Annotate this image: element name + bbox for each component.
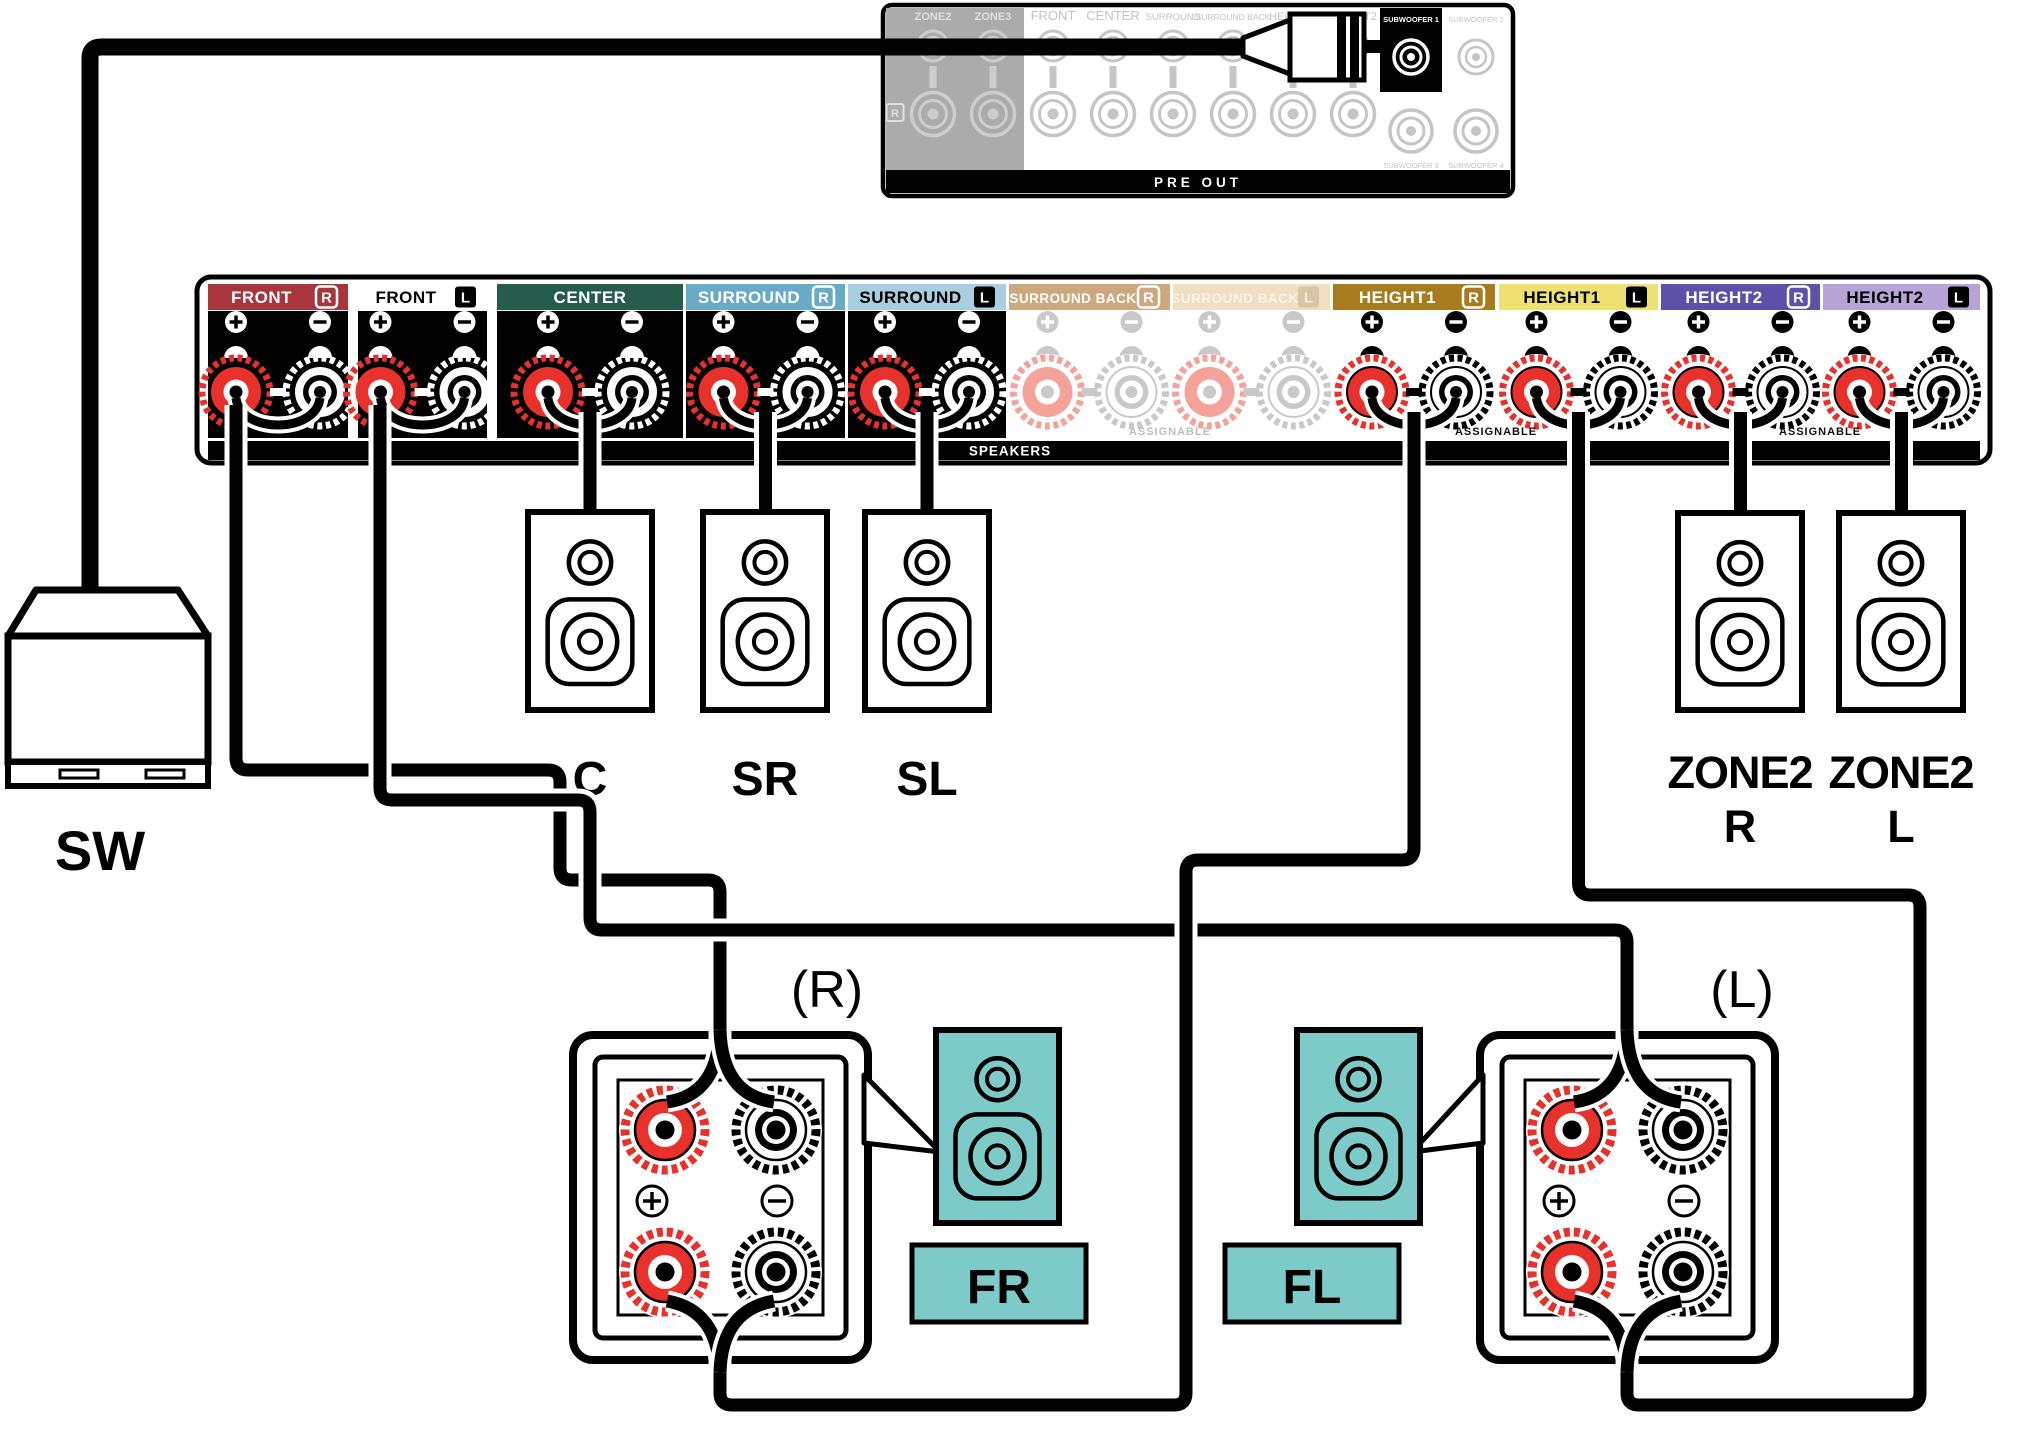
post-jumper (1894, 388, 1910, 396)
plus-icon (637, 1186, 667, 1216)
zone2-left-speaker (1839, 513, 1963, 710)
post-jumper (758, 388, 774, 396)
section-label: SURROUND (859, 288, 961, 307)
jack-link (1230, 66, 1237, 88)
preout-jack-label: FRONT (1031, 8, 1076, 23)
section-label: HEIGHT2 (1846, 288, 1923, 307)
post-jumper (1733, 388, 1749, 396)
speaker-wiring-diagram: ZONE2ZONE3FRONTCENTERSURROUNDSURROUND BA… (0, 0, 2027, 1435)
minus-icon (1121, 311, 1143, 333)
jack-link (1110, 66, 1117, 88)
surround-left-speaker (865, 512, 989, 710)
speakers-bar (208, 441, 1980, 460)
jack-link (990, 66, 997, 88)
post-jumper (415, 388, 431, 396)
jack-link (930, 66, 937, 88)
post-jumper (1406, 388, 1422, 396)
plus-icon (1199, 311, 1221, 333)
subwoofer-label: SW (55, 819, 145, 882)
surround-right-speaker (703, 512, 827, 710)
post-jumper (1244, 388, 1260, 396)
subwoofer1-label: SUBWOOFER 1 (1383, 15, 1439, 24)
section-label: HEIGHT1 (1359, 288, 1436, 307)
minus-icon (797, 311, 819, 333)
zone2-right-label-line1: ZONE2 (1667, 747, 1812, 798)
section-label: FRONT (375, 288, 436, 307)
pre-out-bar-label: PRE OUT (1154, 175, 1242, 190)
plus-icon (1849, 311, 1871, 333)
post-jumper (1082, 388, 1098, 396)
front-left-terminal-box (1480, 1035, 1775, 1360)
minus-icon (762, 1186, 792, 1216)
section-label: CENTER (554, 288, 627, 307)
preout-jack-label: CENTER (1086, 8, 1139, 23)
front-right-label: FR (967, 1261, 1031, 1314)
front-left-wire (380, 405, 1627, 1048)
subwoofer2-label: SUBWOOFER 2 (1448, 15, 1503, 24)
preout-jack-label: ZONE3 (975, 11, 1012, 23)
jack-link (1170, 66, 1177, 88)
channel-badge-label: L (1954, 290, 1963, 307)
front-left-terminal-label: (L) (1710, 961, 1774, 1019)
speakers: CSRSLZONE2RZONE2L (528, 512, 1974, 852)
preout-jack-label: ZONE2 (915, 11, 952, 23)
front-right-terminal-box (573, 1035, 868, 1360)
subwoofer-top (8, 590, 208, 636)
subwoofer3-label: SUBWOOFER 3 (1383, 161, 1438, 170)
minus-icon (1610, 311, 1632, 333)
front-right-speaker (936, 1030, 1059, 1223)
front-left-speaker (1297, 1030, 1420, 1223)
assignable-label: ASSIGNABLE (1129, 426, 1211, 438)
minus-icon (454, 311, 476, 333)
post-jumper (1571, 388, 1587, 396)
channel-badge-label: L (1304, 290, 1313, 307)
minus-icon (958, 311, 980, 333)
minus-icon (621, 311, 643, 333)
plus-icon (537, 311, 559, 333)
channel-badge-label: R (321, 290, 332, 307)
front-left-wire-casing (380, 405, 1627, 1048)
minus-icon (1933, 311, 1955, 333)
front-left-label: FL (1283, 1261, 1342, 1314)
zone2-left-label-line2: L (1887, 801, 1915, 852)
minus-icon (1283, 311, 1305, 333)
center-speaker (528, 512, 652, 710)
plus-icon (1688, 311, 1710, 333)
minus-icon (309, 311, 331, 333)
section-label: SURROUND BACK (1009, 291, 1136, 306)
front-right-terminal-label: (R) (791, 961, 863, 1019)
plus-icon (1544, 1186, 1574, 1216)
plus-icon (370, 311, 392, 333)
channel-badge-label: R (1143, 290, 1154, 307)
right-row-label: R (891, 108, 899, 120)
zone-section-background (886, 8, 1024, 170)
front-right-wire (236, 405, 720, 1048)
channel-badge-label: L (461, 290, 470, 307)
diagram-stage: ZONE2ZONE3FRONTCENTERSURROUNDSURROUND BA… (0, 0, 2027, 1435)
zone2-right-label-line2: R (1724, 801, 1757, 852)
plus-icon (874, 311, 896, 333)
minus-icon (1445, 311, 1467, 333)
zone2-right-speaker (1678, 513, 1802, 710)
surround-right-speaker-label: SR (732, 753, 799, 806)
channel-badge-label: R (1793, 290, 1804, 307)
plus-icon (1526, 311, 1548, 333)
speakers-bar-label: SPEAKERS (969, 444, 1051, 459)
zone2-left-label-line1: ZONE2 (1828, 747, 1973, 798)
subwoofer4-label: SUBWOOFER 4 (1448, 161, 1503, 170)
channel-badge-label: R (1468, 290, 1479, 307)
surround-left-speaker-label: SL (896, 753, 957, 806)
assignable-label: ASSIGNABLE (1779, 426, 1861, 438)
speaker-terminal-strip: FRONTRFRONTLCENTERSURROUNDRSURROUNDLSURR… (197, 277, 1990, 463)
section-label: HEIGHT2 (1685, 288, 1762, 307)
section-label: SURROUND BACK (1171, 291, 1298, 306)
pre-out-panel: ZONE2ZONE3FRONTCENTERSURROUNDSURROUND BA… (883, 5, 1513, 196)
minus-icon (1772, 311, 1794, 333)
front-right-wire-casing (236, 405, 720, 1048)
channel-badge-label: L (980, 290, 989, 307)
jack-link (1050, 66, 1057, 88)
subwoofer-speaker: SW (8, 590, 208, 882)
plus-icon (225, 311, 247, 333)
post-jumper (919, 388, 935, 396)
section-label: SURROUND (698, 288, 800, 307)
plus-icon (1037, 311, 1059, 333)
subwoofer-body (8, 636, 208, 762)
plus-icon (713, 311, 735, 333)
preout-jack-label: SURROUND BACK (1196, 12, 1271, 22)
post-jumper (270, 388, 286, 396)
subwoofer-base (8, 762, 208, 786)
plus-icon (1361, 311, 1383, 333)
channel-badge-label: L (1632, 290, 1641, 307)
assignable-label: ASSIGNABLE (1455, 426, 1537, 438)
minus-icon (1669, 1186, 1699, 1216)
callout-tail-right (864, 1075, 940, 1152)
section-label: FRONT (231, 288, 292, 307)
section-label: HEIGHT1 (1523, 288, 1600, 307)
preout-jack-label: SURROUND (1146, 12, 1201, 23)
channel-badge-label: R (818, 290, 829, 307)
post-jumper (582, 388, 598, 396)
